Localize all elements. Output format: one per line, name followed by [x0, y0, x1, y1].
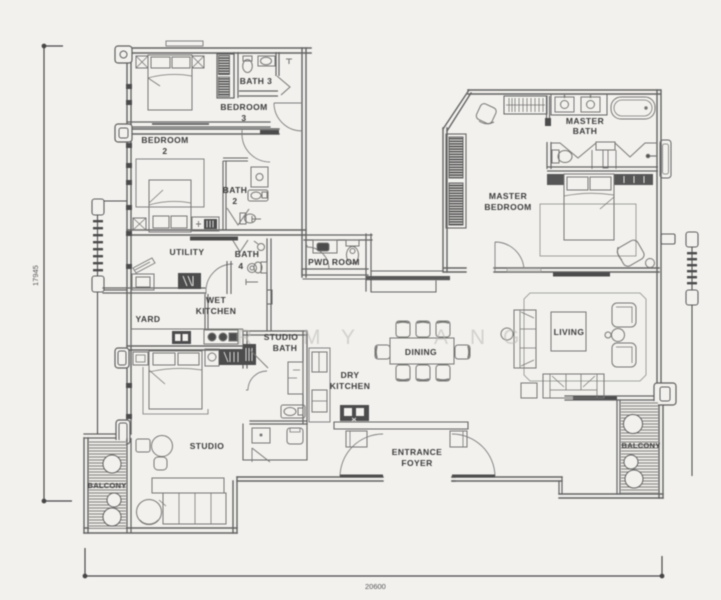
svg-text:Y: Y: [341, 326, 355, 349]
svg-text:STUDIO: STUDIO: [264, 332, 299, 342]
svg-text:17945: 17945: [31, 265, 40, 286]
svg-text:WET: WET: [206, 295, 226, 305]
svg-text:KITCHEN: KITCHEN: [330, 381, 371, 391]
svg-text:R: R: [237, 326, 252, 349]
svg-text:3: 3: [241, 113, 246, 123]
svg-text:MASTER: MASTER: [566, 116, 604, 126]
svg-text:BATH 3: BATH 3: [240, 76, 272, 86]
svg-text:BATH: BATH: [235, 249, 260, 259]
svg-text:20600: 20600: [365, 582, 386, 591]
svg-text:KITCHEN: KITCHEN: [196, 306, 237, 316]
svg-text:DRY: DRY: [341, 370, 360, 380]
svg-text:PWD ROOM: PWD ROOM: [308, 257, 360, 267]
svg-text:BEDROOM: BEDROOM: [484, 202, 531, 212]
svg-text:BALCONY: BALCONY: [622, 441, 661, 450]
svg-text:M: M: [303, 326, 321, 349]
svg-text:2: 2: [162, 146, 167, 156]
svg-text:A: A: [434, 326, 448, 349]
svg-text:LIVING: LIVING: [554, 327, 585, 337]
svg-text:FOYER: FOYER: [401, 458, 432, 468]
svg-text:STUDIO: STUDIO: [190, 441, 225, 451]
svg-text:BALCONY: BALCONY: [88, 481, 127, 490]
svg-text:YARD: YARD: [136, 314, 161, 324]
svg-text:N: N: [470, 326, 485, 349]
svg-text:BEDROOM: BEDROOM: [141, 135, 188, 145]
svg-text:BATH: BATH: [573, 126, 598, 136]
svg-text:DINING: DINING: [405, 347, 437, 357]
svg-text:BATH: BATH: [223, 185, 248, 195]
svg-text:BEDROOM: BEDROOM: [220, 102, 267, 112]
svg-text:UTILITY: UTILITY: [170, 247, 205, 257]
svg-text:G: G: [503, 326, 519, 349]
svg-text:4: 4: [238, 261, 243, 271]
svg-text:2: 2: [232, 196, 237, 206]
svg-text:MASTER: MASTER: [489, 191, 527, 201]
svg-text:BATH: BATH: [273, 343, 298, 353]
svg-text:ENTRANCE: ENTRANCE: [392, 447, 442, 457]
